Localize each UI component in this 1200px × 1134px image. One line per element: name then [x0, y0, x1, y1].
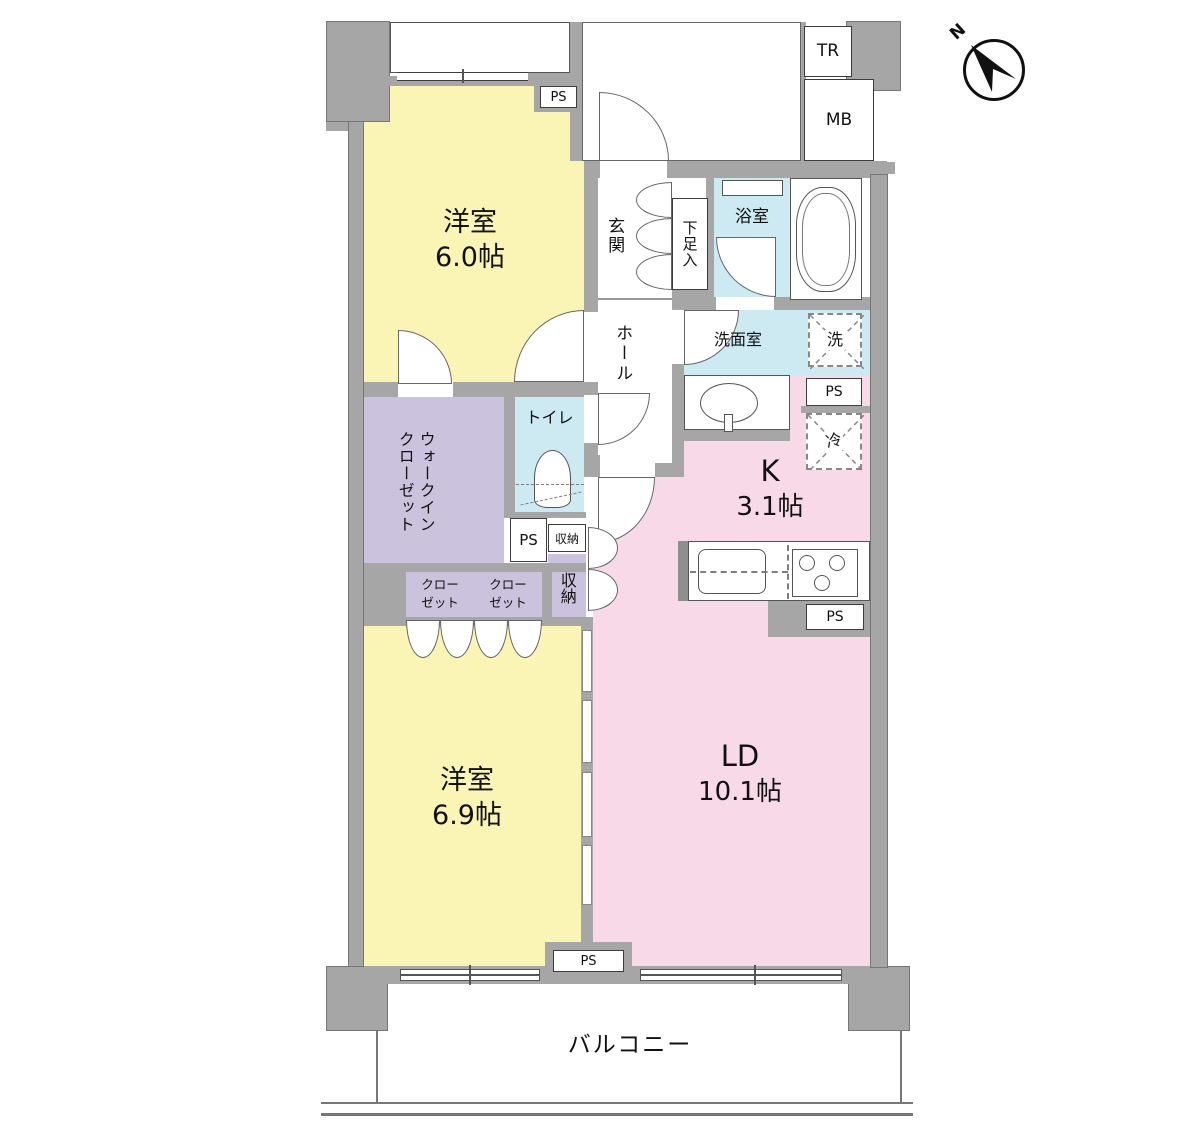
- doorway: [716, 297, 774, 310]
- wall-under-ps-mid: [801, 406, 870, 413]
- stove-burner: [829, 555, 845, 571]
- toilet-dash-line: [516, 484, 584, 485]
- bathroom-label: 浴室: [714, 206, 790, 228]
- ps-label: PS: [826, 609, 843, 625]
- wall-hall-right: [672, 364, 684, 477]
- wic-line2: クローゼット: [394, 412, 415, 552]
- wall-column-mid: [584, 161, 598, 312]
- doorway: [600, 463, 655, 477]
- closet-line1: クロー: [474, 576, 542, 594]
- room-area: 3.1帖: [690, 491, 850, 525]
- ps-label: PS: [550, 90, 566, 105]
- room-name: 洋室: [380, 205, 560, 240]
- shoe-cabinet-label: 下足入: [680, 220, 701, 268]
- storage-small-box: 収納: [548, 524, 586, 552]
- bathroom-niche: [722, 180, 783, 196]
- room-name: K: [690, 453, 850, 491]
- balcony-left-line: [376, 1031, 378, 1103]
- entrance-step-line: [598, 298, 672, 300]
- compass: N: [945, 15, 1045, 115]
- wall-sink-bottom: [684, 430, 790, 441]
- ps-box-toilet: PS: [510, 518, 547, 562]
- ps-label: PS: [580, 954, 596, 969]
- mb-box: MB: [804, 79, 874, 161]
- partition-panel: [582, 845, 592, 905]
- stove-burner: [814, 575, 830, 591]
- kitchen-label: K 3.1帖: [690, 453, 850, 524]
- storage-tall-label: 収納: [556, 560, 577, 616]
- wall-hall-corner: [584, 455, 600, 477]
- room-name: LD: [650, 738, 830, 776]
- counter-dash-divider: [787, 545, 789, 599]
- balcony-right-line: [900, 1031, 902, 1103]
- storage-small-label: 収納: [555, 530, 579, 547]
- hall-label: ホール: [611, 306, 633, 401]
- room-area: 10.1帖: [650, 776, 830, 810]
- balcony-rail-line1: [321, 1102, 913, 1104]
- mb-label: MB: [826, 109, 852, 131]
- partition-panel: [582, 700, 592, 763]
- wall-left-outer: [348, 121, 364, 968]
- ps-label: PS: [519, 531, 538, 549]
- balcony-label: バルコニー: [480, 1031, 780, 1061]
- wall-right-outer: [870, 174, 888, 968]
- floor-plan: TR MB PS 下足入 PS PS 収納 PS PS: [0, 0, 1200, 1134]
- closet1-label: クロー ゼット: [406, 576, 474, 611]
- shoe-cabinet-box: 下足入: [672, 198, 708, 290]
- wall-column: [584, 443, 598, 455]
- bathtub-inner: [802, 193, 850, 286]
- ps-box-bottom: PS: [553, 950, 624, 972]
- wic-line1: ウォークイン: [415, 412, 436, 552]
- closet-line2: ゼット: [406, 594, 474, 612]
- window-tick: [754, 965, 756, 985]
- closet-line2: ゼット: [474, 594, 542, 612]
- ps-box-mid: PS: [806, 378, 862, 406]
- doorway: [672, 312, 684, 364]
- living-label: LD 10.1帖: [650, 738, 830, 809]
- wall-top-notch: [887, 162, 895, 174]
- room-area: 6.0帖: [380, 240, 560, 275]
- washer-label: 洗: [825, 330, 845, 351]
- ps-label: PS: [825, 384, 842, 400]
- wall-column: [584, 382, 598, 395]
- ps-box-top: PS: [540, 86, 577, 108]
- partition-panel: [582, 772, 592, 837]
- wall-kitchen-top-corner: [655, 463, 684, 477]
- tr-box: TR: [804, 26, 852, 77]
- window-top: [390, 22, 570, 73]
- wall-bedroom1-bottom-a: [364, 382, 398, 397]
- doorway: [584, 395, 598, 443]
- window-top-tick: [462, 69, 464, 83]
- closet-line1: クロー: [406, 576, 474, 594]
- wic-label: ウォークイン クローゼット: [394, 412, 436, 552]
- ps-box-kitchen: PS: [806, 604, 864, 630]
- washer-box: 洗: [808, 313, 862, 367]
- doorway: [398, 384, 453, 397]
- washbasin-faucet: [724, 414, 733, 432]
- entrance-label: 玄関: [603, 196, 625, 276]
- room-name: 洋室: [377, 763, 557, 798]
- window-sash-line: [640, 974, 842, 976]
- window-tick: [469, 965, 471, 985]
- doorway: [600, 161, 667, 178]
- tr-label: TR: [817, 40, 839, 62]
- partition-panel: [582, 630, 592, 692]
- room-area: 6.9帖: [377, 798, 557, 833]
- wall-closet-divider: [542, 572, 552, 617]
- bedroom1-label: 洋室 6.0帖: [380, 205, 560, 275]
- wall-counter-stub: [678, 541, 688, 601]
- doorway: [584, 312, 598, 382]
- washroom-label: 洗面室: [688, 330, 788, 351]
- stove-burner: [799, 555, 815, 571]
- bedroom2-label: 洋室 6.9帖: [377, 763, 557, 833]
- closet2-label: クロー ゼット: [474, 576, 542, 611]
- wall-pillar-top-left: [326, 21, 390, 122]
- wall-bedroom1-bottom-b: [453, 382, 584, 397]
- toilet-label: トイレ: [515, 408, 584, 429]
- balcony-rail-line2: [321, 1113, 913, 1116]
- wall-wic-toilet: [504, 397, 515, 512]
- counter-dash-line: [690, 571, 788, 573]
- wall-wic-bottom: [364, 563, 586, 572]
